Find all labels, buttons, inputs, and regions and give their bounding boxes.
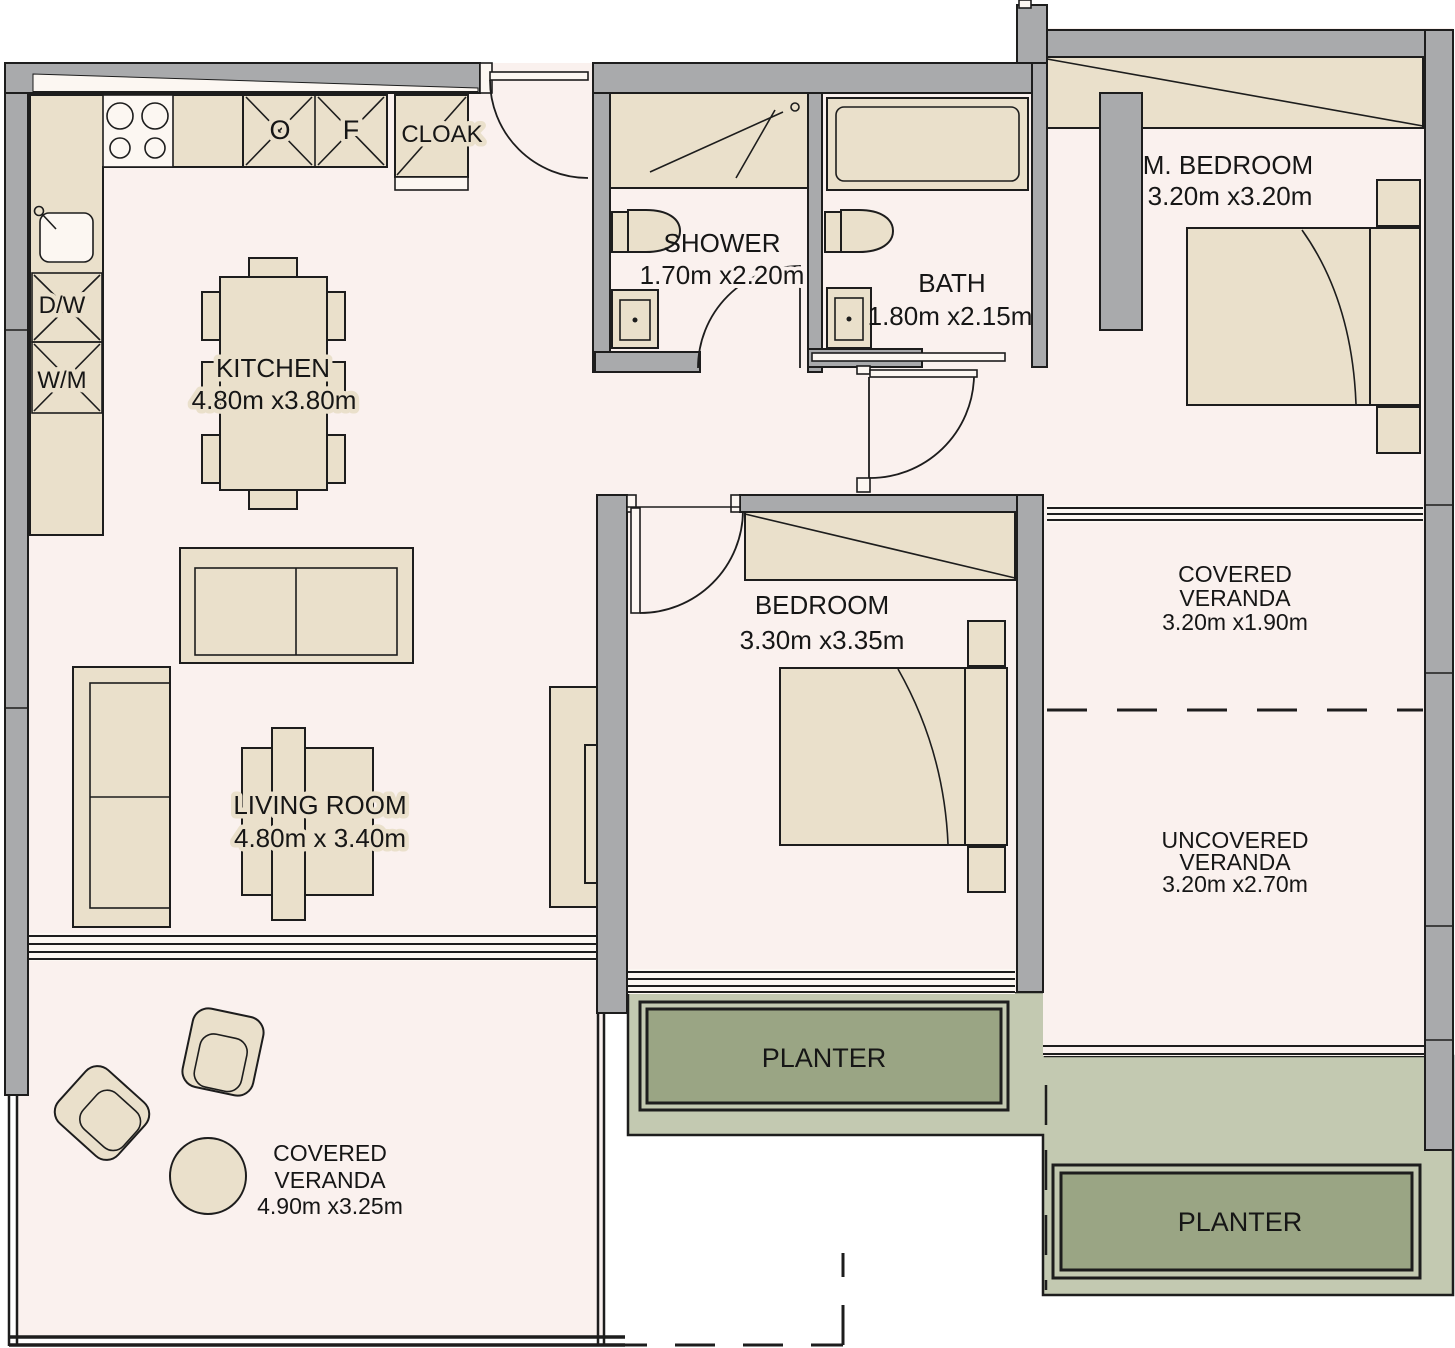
toilet-1-tank bbox=[612, 212, 628, 252]
living-room-label: LIVING ROOM bbox=[233, 790, 406, 820]
shower-label: SHOWER bbox=[664, 228, 781, 258]
bedroom-furniture bbox=[745, 512, 1015, 892]
shower-dims: 1.70m x2.20m bbox=[640, 260, 805, 290]
veranda-round-table bbox=[170, 1138, 246, 1214]
basin-2-drain bbox=[847, 317, 852, 322]
top-wall-notch bbox=[1019, 0, 1031, 8]
uncovered-veranda-dims: 3.20m x2.70m bbox=[1162, 871, 1308, 897]
hall-door-leaf-closed bbox=[870, 370, 977, 377]
master-bedroom-label: M. BEDROOM bbox=[1143, 150, 1313, 180]
bedroom-bed bbox=[780, 668, 965, 845]
covered-veranda-right-label-2: VERANDA bbox=[1179, 585, 1291, 611]
shower-left-wall bbox=[593, 93, 610, 372]
covered-veranda-bottom-label-2: VERANDA bbox=[274, 1167, 386, 1193]
hall-door-jamb-bottom bbox=[857, 478, 870, 492]
tv bbox=[585, 745, 597, 883]
left-exterior-wall bbox=[5, 63, 28, 1095]
fridge-label: F bbox=[343, 115, 360, 145]
right-exterior-wall bbox=[1425, 30, 1453, 1150]
bedroom-label: BEDROOM bbox=[755, 590, 889, 620]
bedroom-right-wall bbox=[1017, 495, 1043, 992]
master-nightstand-1 bbox=[1377, 180, 1420, 226]
toilet-2-bowl bbox=[841, 210, 893, 252]
bedroom-nightstand-1 bbox=[968, 621, 1005, 666]
kitchen-dims: 4.80m x3.80m bbox=[192, 385, 357, 415]
top-wall-connector bbox=[1017, 5, 1047, 63]
covered-veranda-bottom-label-1: COVERED bbox=[273, 1140, 387, 1166]
bath-dims: 1.80m x2.15m bbox=[868, 301, 1033, 331]
shower-bath-top-wall bbox=[593, 63, 1032, 93]
covered-veranda-right-dims: 3.20m x1.90m bbox=[1162, 609, 1308, 635]
bedroom-left-wall bbox=[597, 495, 627, 1013]
master-bedroom-left-wall bbox=[1100, 93, 1142, 330]
bedroom-dims: 3.30m x3.35m bbox=[740, 625, 905, 655]
bedroom-nightstand-2 bbox=[968, 847, 1005, 892]
entry-door-leaf bbox=[490, 72, 588, 80]
cloak-shelf bbox=[395, 177, 468, 190]
master-bedroom-dims: 3.20m x3.20m bbox=[1148, 181, 1313, 211]
toilet-2-tank bbox=[825, 212, 841, 252]
veranda-armchair-1 bbox=[179, 1005, 266, 1098]
master-bed-pillow bbox=[1370, 228, 1420, 405]
dining-table bbox=[220, 277, 327, 490]
kitchen-label: KITCHEN bbox=[216, 353, 330, 383]
bedroom-door-leaf bbox=[631, 508, 640, 613]
bedroom-bed-pillow bbox=[965, 668, 1007, 845]
living-room-dims: 4.80m x 3.40m bbox=[234, 823, 406, 853]
bath-sliding-door-leaf bbox=[812, 353, 1005, 361]
bathtub bbox=[827, 98, 1028, 190]
shower-bath-partition-wall bbox=[808, 93, 822, 372]
oven-label: O bbox=[269, 115, 290, 145]
coffee-table bbox=[242, 748, 373, 895]
bedroom-door-jamb-2 bbox=[731, 495, 740, 512]
shower-bottom-wall bbox=[595, 352, 700, 372]
cloak-label: CLOAK bbox=[401, 121, 482, 148]
planter-1-label: PLANTER bbox=[762, 1043, 887, 1073]
covered-veranda-bottom-dims: 4.90m x3.25m bbox=[257, 1193, 403, 1219]
living-veranda-slider-band bbox=[28, 933, 597, 961]
covered-veranda-right-label-1: COVERED bbox=[1178, 561, 1292, 587]
master-bedroom-top-wall bbox=[1047, 30, 1425, 57]
bath-label: BATH bbox=[918, 268, 985, 298]
washing-machine-label: W/M bbox=[37, 367, 86, 394]
bedroom-top-wall bbox=[740, 495, 1043, 512]
bath-right-wall bbox=[1032, 63, 1047, 367]
hall-door-jamb-top bbox=[857, 366, 870, 374]
floor-plan: O F D/W W/M bbox=[0, 0, 1455, 1348]
basin-1-drain bbox=[633, 318, 638, 323]
planter-2-label: PLANTER bbox=[1178, 1207, 1303, 1237]
shower-enclosure bbox=[610, 93, 808, 188]
master-nightstand-2 bbox=[1377, 407, 1420, 453]
dishwasher-label: D/W bbox=[39, 292, 86, 319]
